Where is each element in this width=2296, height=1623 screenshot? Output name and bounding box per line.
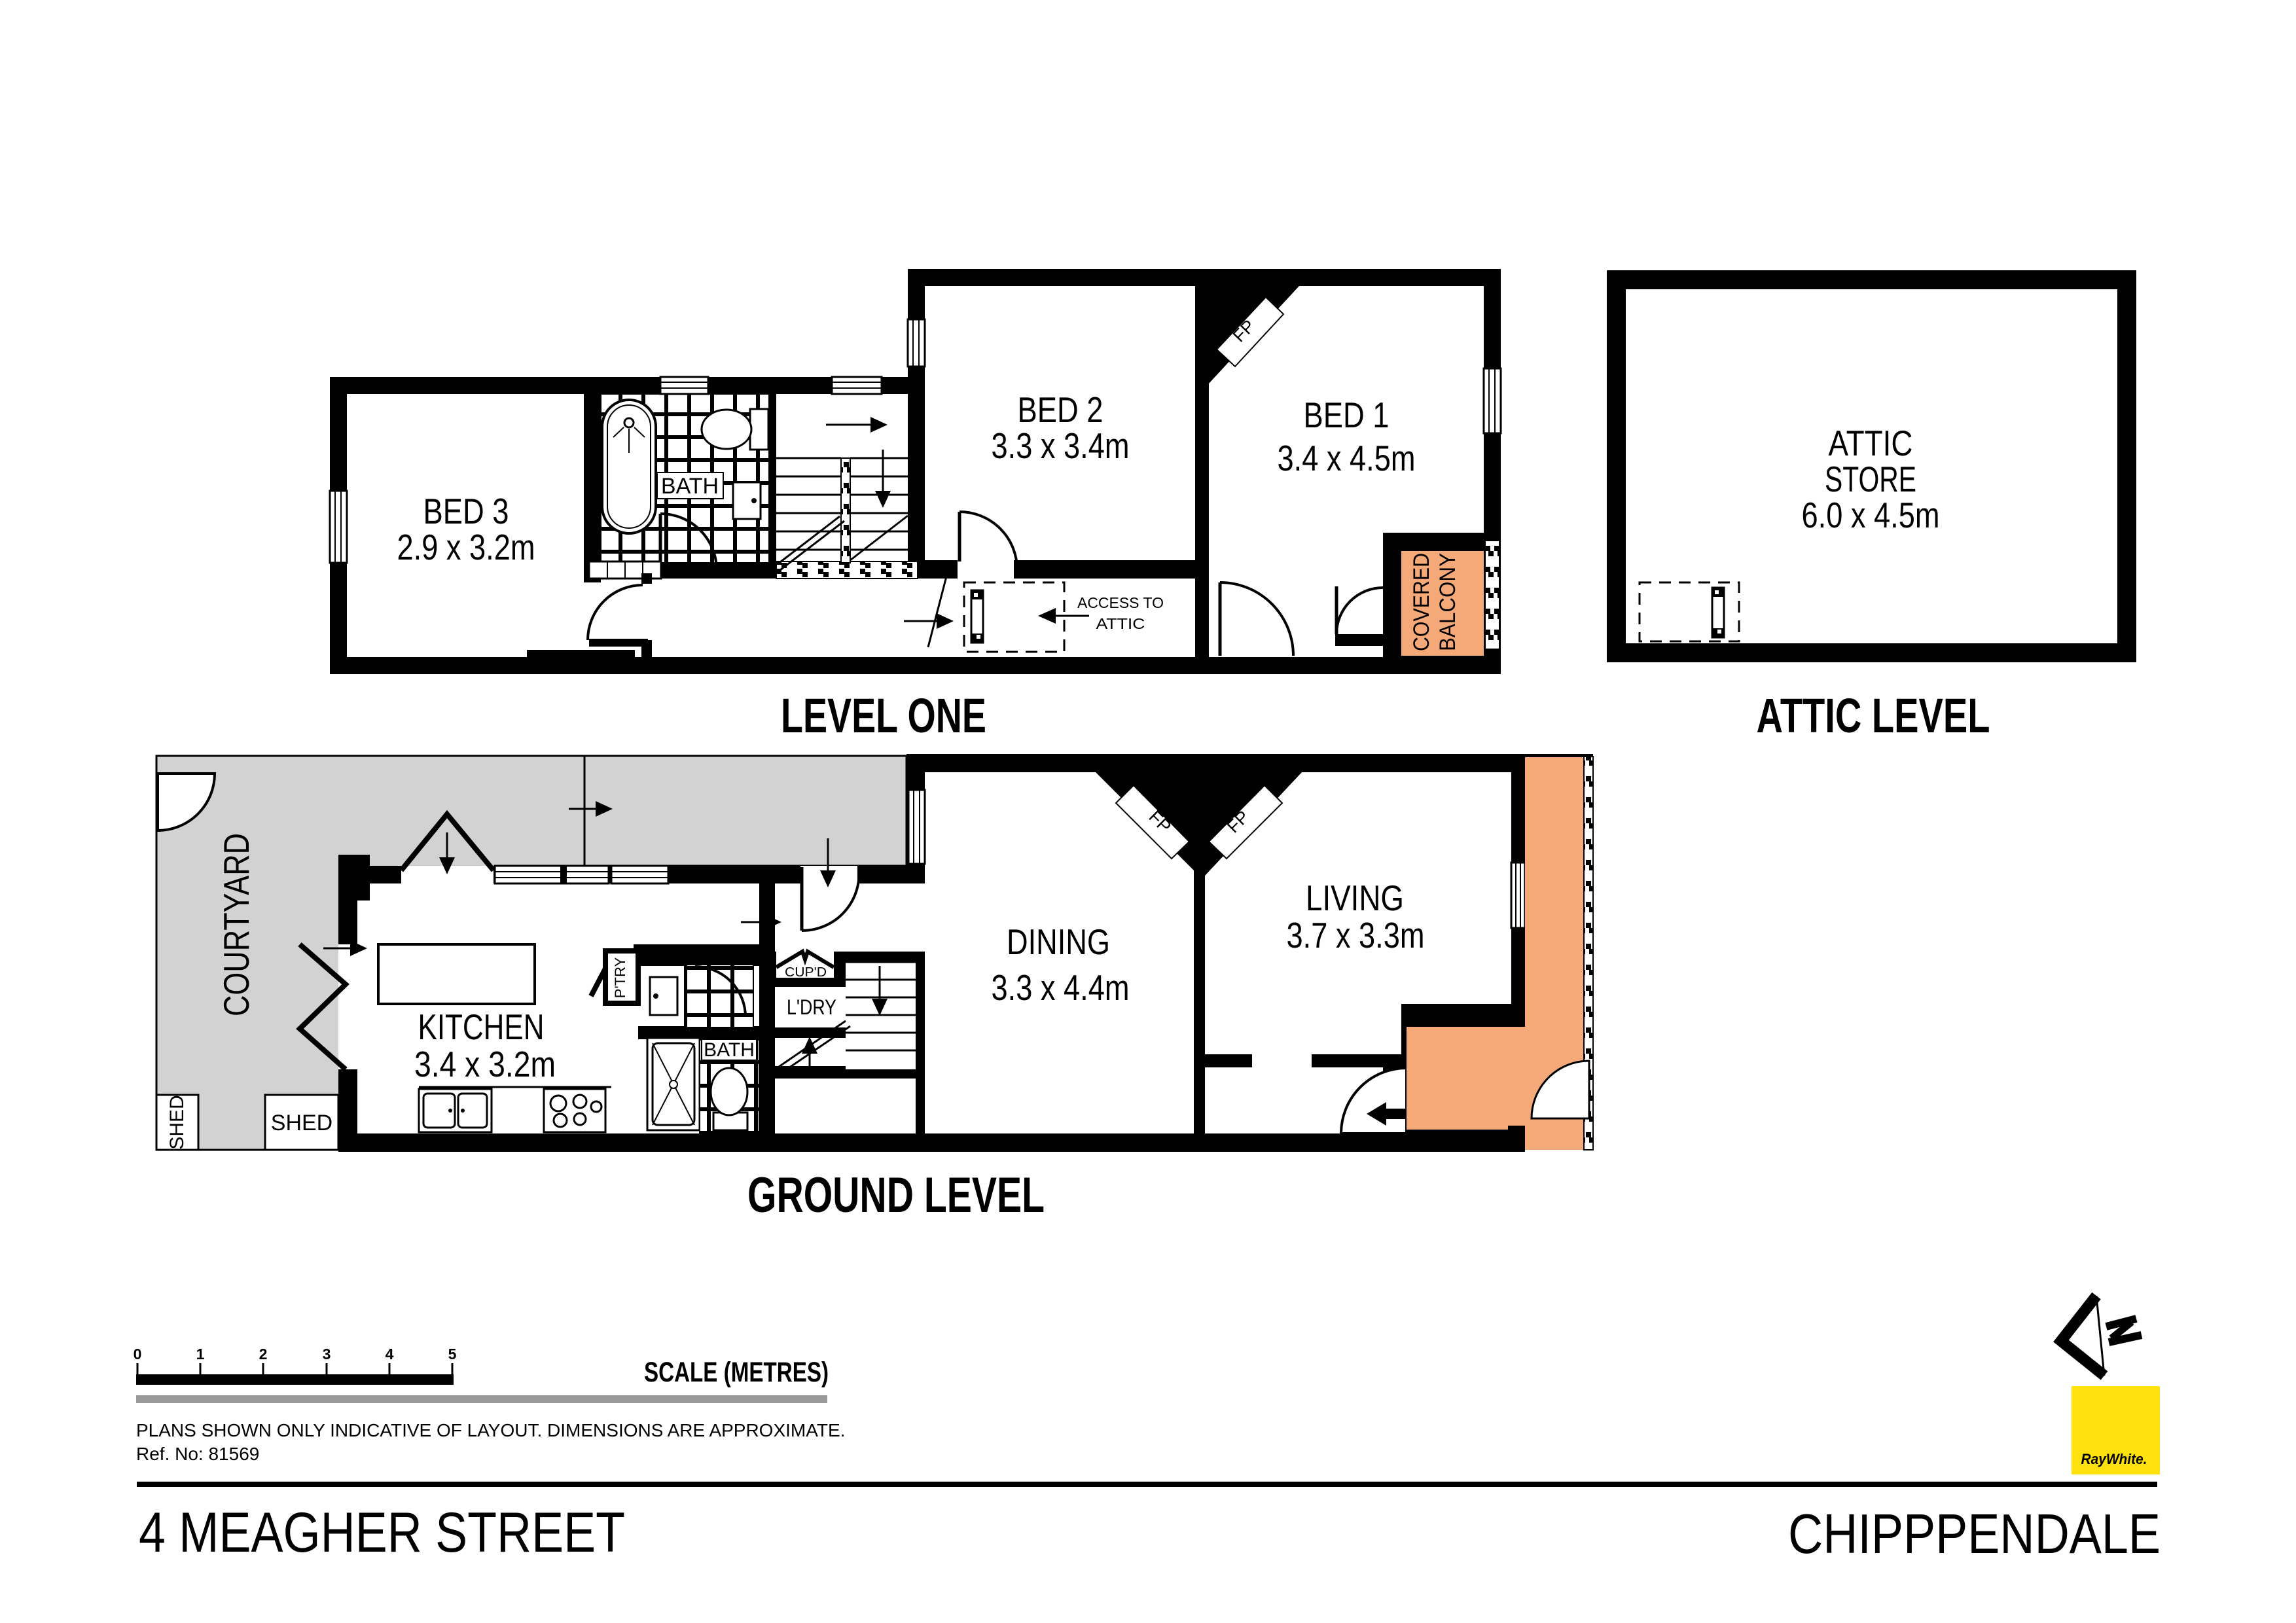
svg-text:4 MEAGHER STREET: 4 MEAGHER STREET	[139, 1501, 625, 1564]
svg-text:BATH: BATH	[704, 1039, 755, 1061]
svg-text:BED 2: BED 2	[1018, 389, 1103, 430]
svg-text:SCALE (METRES): SCALE (METRES)	[644, 1357, 829, 1388]
svg-text:5: 5	[448, 1346, 457, 1363]
svg-text:KITCHEN: KITCHEN	[418, 1007, 545, 1047]
svg-text:PLANS SHOWN ONLY INDICATIVE OF: PLANS SHOWN ONLY INDICATIVE OF LAYOUT. D…	[136, 1420, 845, 1440]
svg-text:3.3 x 3.4m: 3.3 x 3.4m	[992, 425, 1130, 466]
svg-text:BED 1: BED 1	[1304, 395, 1390, 435]
svg-text:GROUND LEVEL: GROUND LEVEL	[747, 1168, 1045, 1223]
svg-text:2: 2	[259, 1346, 268, 1363]
svg-text:ATTIC: ATTIC	[1096, 615, 1145, 632]
svg-text:BALCONY: BALCONY	[1435, 553, 1460, 651]
svg-text:3.3 x 4.4m: 3.3 x 4.4m	[992, 967, 1130, 1008]
svg-text:SHED: SHED	[271, 1111, 332, 1135]
svg-text:ATTIC: ATTIC	[1829, 423, 1913, 463]
svg-text:4: 4	[386, 1346, 394, 1363]
svg-text:ATTIC LEVEL: ATTIC LEVEL	[1757, 688, 1990, 743]
svg-text:LEVEL ONE: LEVEL ONE	[781, 688, 986, 743]
svg-text:3: 3	[323, 1346, 331, 1363]
svg-text:RayWhite.: RayWhite.	[2081, 1451, 2147, 1467]
svg-text:2.9 x 3.2m: 2.9 x 3.2m	[397, 527, 535, 567]
svg-text:STORE: STORE	[1825, 459, 1916, 499]
svg-text:Ref. No: 81569: Ref. No: 81569	[136, 1444, 259, 1464]
svg-text:ACCESS TO: ACCESS TO	[1077, 594, 1164, 611]
svg-text:1: 1	[196, 1346, 205, 1363]
svg-text:3.7 x 3.3m: 3.7 x 3.3m	[1287, 915, 1425, 955]
svg-text:DINING: DINING	[1007, 921, 1110, 962]
svg-text:6.0 x 4.5m: 6.0 x 4.5m	[1802, 495, 1940, 535]
svg-text:3.4 x 4.5m: 3.4 x 4.5m	[1278, 438, 1416, 478]
svg-text:COURTYARD: COURTYARD	[216, 833, 257, 1016]
svg-text:LIVING: LIVING	[1306, 878, 1404, 918]
svg-text:SHED: SHED	[166, 1095, 188, 1149]
svg-text:P'TRY: P'TRY	[612, 957, 628, 998]
svg-text:0: 0	[134, 1346, 142, 1363]
svg-text:CHIPPPENDALE: CHIPPPENDALE	[1788, 1503, 2161, 1565]
svg-text:COVERED: COVERED	[1409, 553, 1434, 651]
svg-text:BED 3: BED 3	[423, 491, 509, 531]
svg-text:3.4 x 3.2m: 3.4 x 3.2m	[414, 1044, 556, 1084]
svg-text:BATH: BATH	[661, 474, 719, 499]
svg-text:CUP'D: CUP'D	[785, 965, 827, 980]
svg-text:L'DRY: L'DRY	[787, 995, 836, 1019]
